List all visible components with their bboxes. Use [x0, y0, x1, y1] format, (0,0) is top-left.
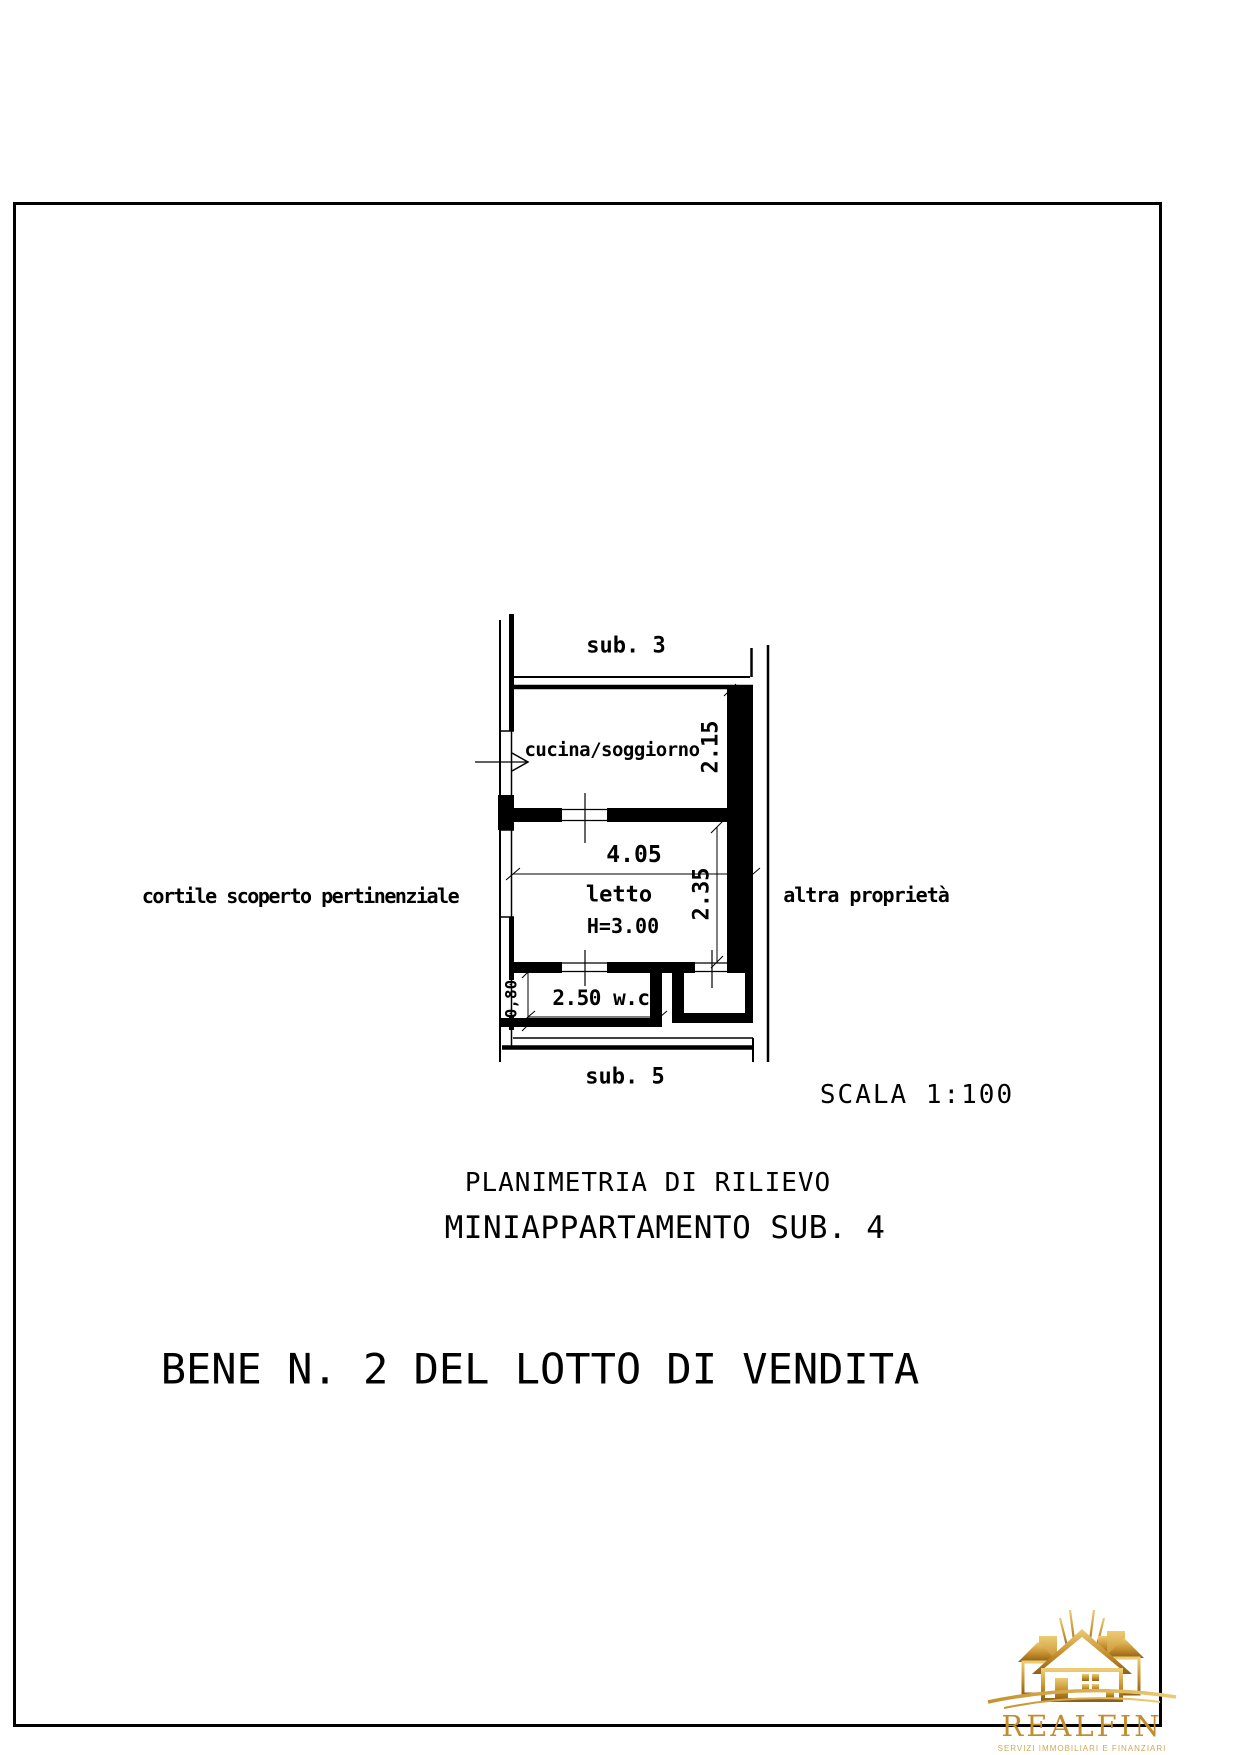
floor-plan-drawing — [0, 0, 1240, 1755]
scale-label: SCALA 1:100 — [820, 1080, 1014, 1110]
label-courtyard: cortile scoperto pertinenziale — [142, 884, 458, 908]
sheet-border — [15, 204, 1161, 1726]
scanned-plan-page: { "page": { "background": "#ffffff", "fr… — [0, 0, 1240, 1755]
realfin-logo: REALFIN SERVIZI IMMOBILIARI E FINANZIARI — [982, 1598, 1182, 1755]
logo-tagline-text: SERVIZI IMMOBILIARI E FINANZIARI — [982, 1744, 1182, 1753]
kitchen-bedroom-wall-left — [513, 808, 562, 822]
label-bedroom: letto — [586, 883, 652, 908]
dimension-wc-depth: 0,80 — [502, 980, 521, 1019]
label-wc: 2.50 w.c. — [552, 986, 661, 1010]
logo-brand-text: REALFIN — [982, 1709, 1182, 1743]
label-sub-3: sub. 3 — [586, 634, 665, 659]
bedroom-right-wall — [727, 822, 753, 962]
realfin-houses-icon — [982, 1598, 1182, 1710]
label-other-property: altra proprietà — [783, 883, 949, 907]
dimension-kitchen-depth: 2.15 — [699, 721, 724, 774]
dimension-bedroom-depth: 2.35 — [690, 868, 715, 921]
bedroom-bottom-wall-left — [511, 962, 562, 973]
bedroom-bottom-wall-right — [727, 962, 753, 973]
caption-survey-plan: PLANIMETRIA DI RILIEVO — [465, 1168, 831, 1198]
main-title: BENE N. 2 DEL LOTTO DI VENDITA — [161, 1345, 920, 1394]
wc-bottom-wall — [500, 1018, 662, 1027]
kitchen-bedroom-wall-right — [607, 808, 753, 822]
dim-line-4-05 — [506, 868, 760, 880]
left-wall-corner-block — [498, 795, 514, 830]
caption-apartment-sub4: MINIAPPARTAMENTO SUB. 4 — [445, 1210, 886, 1246]
closet-bottom-wall — [672, 1013, 753, 1023]
entrance-arrow — [475, 753, 528, 771]
dimension-bedroom-width: 4.05 — [606, 842, 661, 868]
label-bedroom-height: H=3.00 — [587, 914, 659, 938]
label-sub-5: sub. 5 — [585, 1065, 664, 1090]
label-kitchen-living: cucina/soggiorno — [524, 739, 699, 761]
bedroom-bottom-wall-mid — [607, 962, 695, 973]
kitchen-right-wall — [727, 687, 753, 808]
